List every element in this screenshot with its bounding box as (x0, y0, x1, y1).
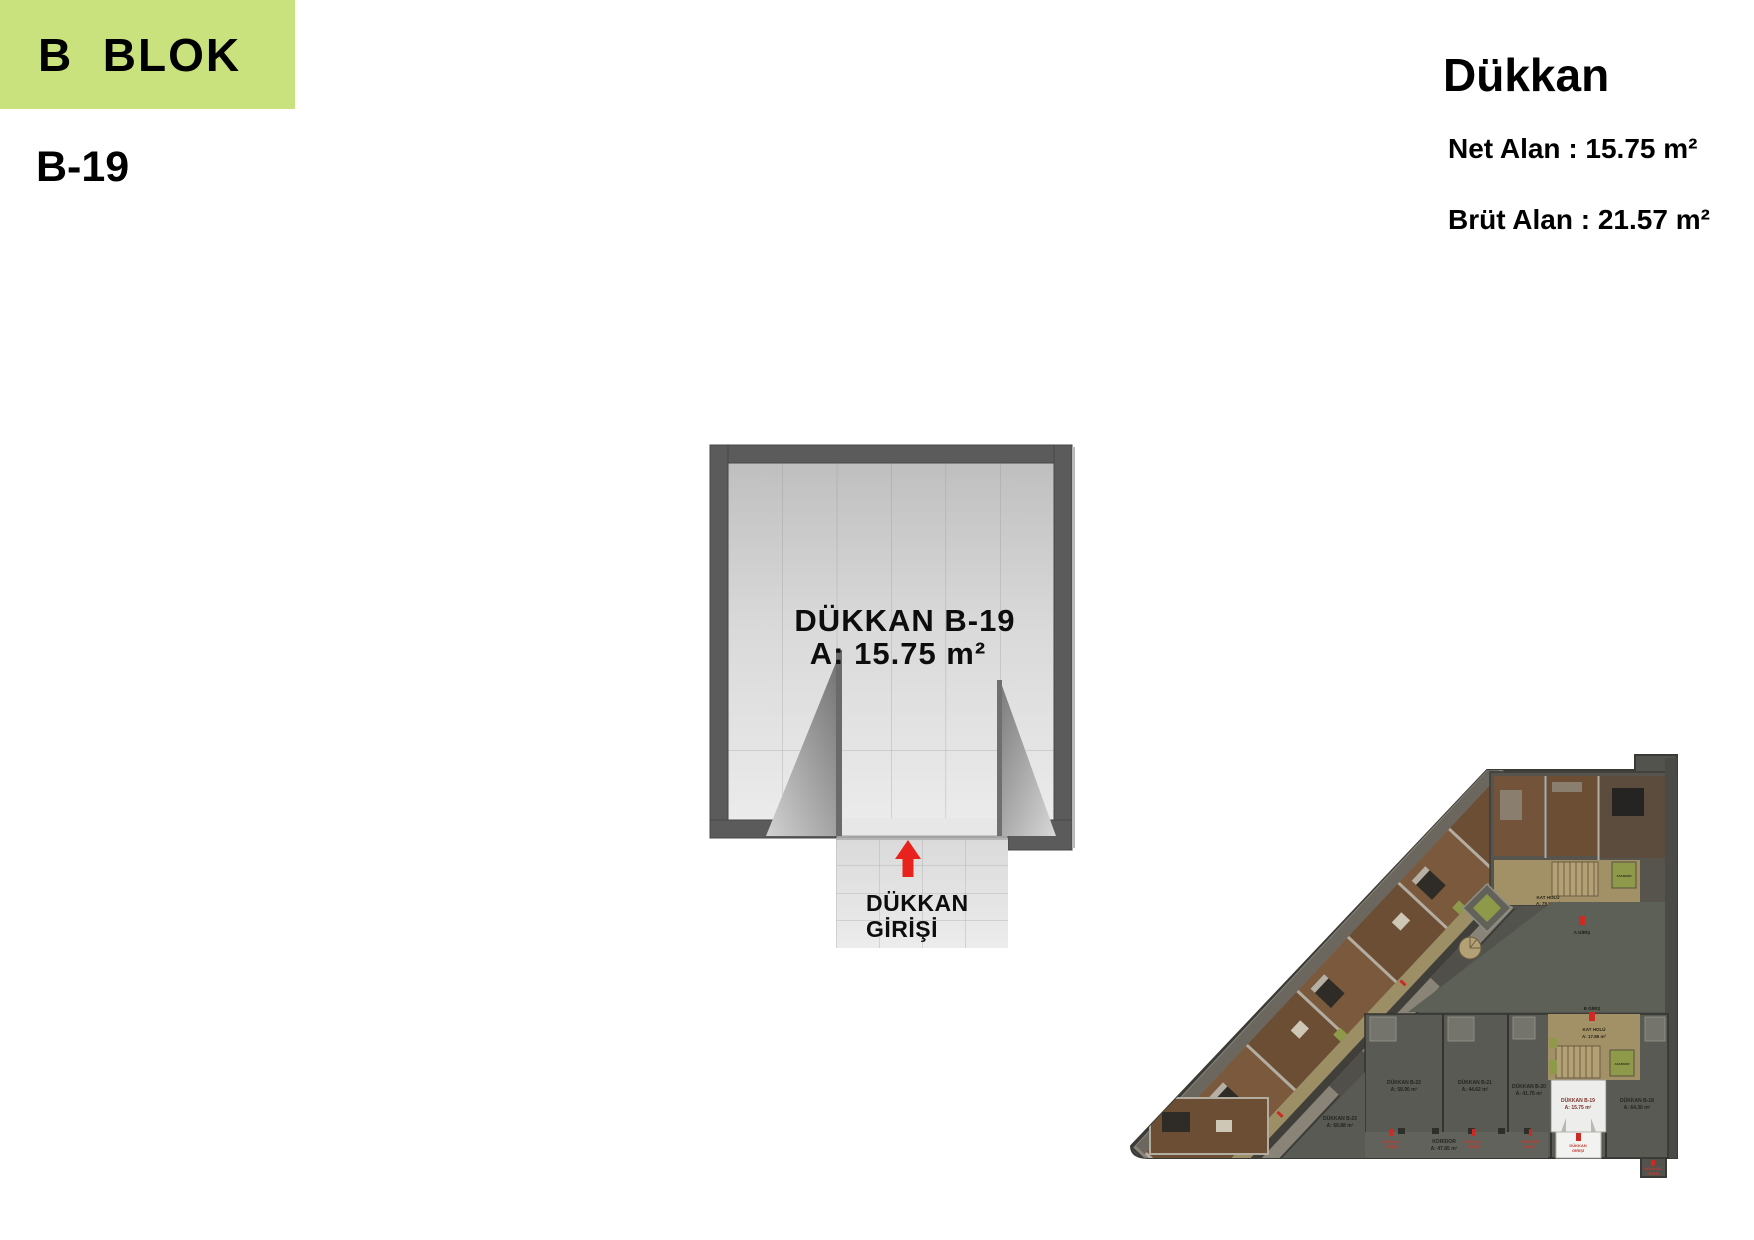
micro-entry-3b: GİRİŞİ (1524, 1144, 1536, 1149)
micro-entry-5b: GİRİŞİ (1647, 1171, 1659, 1176)
shop-b20-area-label: A: 41.75 m² (1516, 1091, 1543, 1097)
micro-entry-2b: GİRİŞİ (1467, 1144, 1479, 1149)
shop-b19-area-label: A: 15.75 m² (1565, 1105, 1592, 1111)
shop-b18-label: DÜKKAN B-18 (1620, 1097, 1654, 1104)
shop-b18-area-label: A: 64.30 m² (1624, 1105, 1651, 1111)
unit-type-title: Dükkan (1443, 48, 1743, 102)
net-area-text: Net Alan : 15.75 m² (1448, 133, 1697, 165)
unit-code-label: B-19 (36, 143, 129, 192)
shop-b20-label: DÜKKAN B-20 (1512, 1083, 1546, 1090)
door-threshold-floor (836, 818, 1008, 838)
b-giris-label: B GİRİŞ (1584, 1005, 1601, 1011)
kat-holu-b-label2: A: 17.85 m² (1582, 1034, 1607, 1039)
kat-holu-a-label1: KAT HOLÜ (1537, 894, 1560, 900)
wall-outer-highlight (1072, 447, 1075, 848)
kat-holu-b-label1: KAT HOLÜ (1583, 1026, 1606, 1032)
entrance-label-line2: GİRİŞİ (866, 916, 938, 942)
block-label: B BLOK (0, 28, 241, 82)
micro-entry-1b: GİRİŞİ (1385, 1144, 1397, 1149)
elevator-b-label: ASANSÖR (1614, 1061, 1630, 1066)
site-plan-minimap: ASANSÖR KAT HOLÜ A: 79.50 m² A GİRİŞ (1120, 745, 1690, 1185)
a-giris-marker (1579, 916, 1585, 925)
entrance-label-line1: DÜKKAN (866, 890, 969, 916)
koridor-area-label: A: 47.85 m² (1431, 1146, 1458, 1152)
shop-b22-label: DÜKKAN B-22 (1387, 1079, 1421, 1086)
b-giris-marker (1589, 1012, 1595, 1021)
floor-plan-sheet: B BLOK B-19 Dükkan Net Alan : 15.75 m² B… (0, 0, 1754, 1240)
gross-area-text: Brüt Alan : 21.57 m² (1448, 204, 1710, 236)
room-name-label: DÜKKAN B-19 (794, 603, 1015, 638)
door-jamb-right (997, 680, 1002, 836)
unit-info-panel: Dükkan Net Alan : 15.75 m² Brüt Alan : 2… (1443, 48, 1743, 102)
shop-b23-label: DÜKKAN B-23 (1323, 1115, 1357, 1122)
door-jamb-left (836, 650, 842, 836)
wall-right (1054, 445, 1072, 850)
shop-b21-area-label: A: 44.62 m² (1462, 1087, 1489, 1093)
micro-entry-4b: GİRİŞİ (1572, 1148, 1584, 1153)
wall-top (710, 445, 1072, 463)
b19-entry-marker (1576, 1133, 1581, 1141)
unit-floor-plan: DÜKKAN B-19 A: 15.75 m² DÜKKAN GİRİŞİ (700, 430, 1080, 960)
vestibule-top-line (836, 838, 1008, 840)
a-giris-label: A GİRİŞ (1574, 929, 1591, 935)
elevator-a-label: ASANSÖR (1616, 873, 1632, 878)
shop-b23-area-label: A: 66.88 m² (1327, 1123, 1354, 1129)
room-area-label: A: 15.75 m² (810, 636, 986, 671)
koridor-label: KORİDOR (1432, 1138, 1456, 1145)
threshold-line (836, 836, 1008, 839)
shop-b22-area-label: A: 58.90 m² (1391, 1087, 1418, 1093)
block-badge: B BLOK (0, 0, 295, 109)
shop-b19-label: DÜKKAN B-19 (1561, 1097, 1595, 1104)
wall-left (710, 445, 728, 838)
shop-b21-label: DÜKKAN B-21 (1458, 1079, 1492, 1086)
